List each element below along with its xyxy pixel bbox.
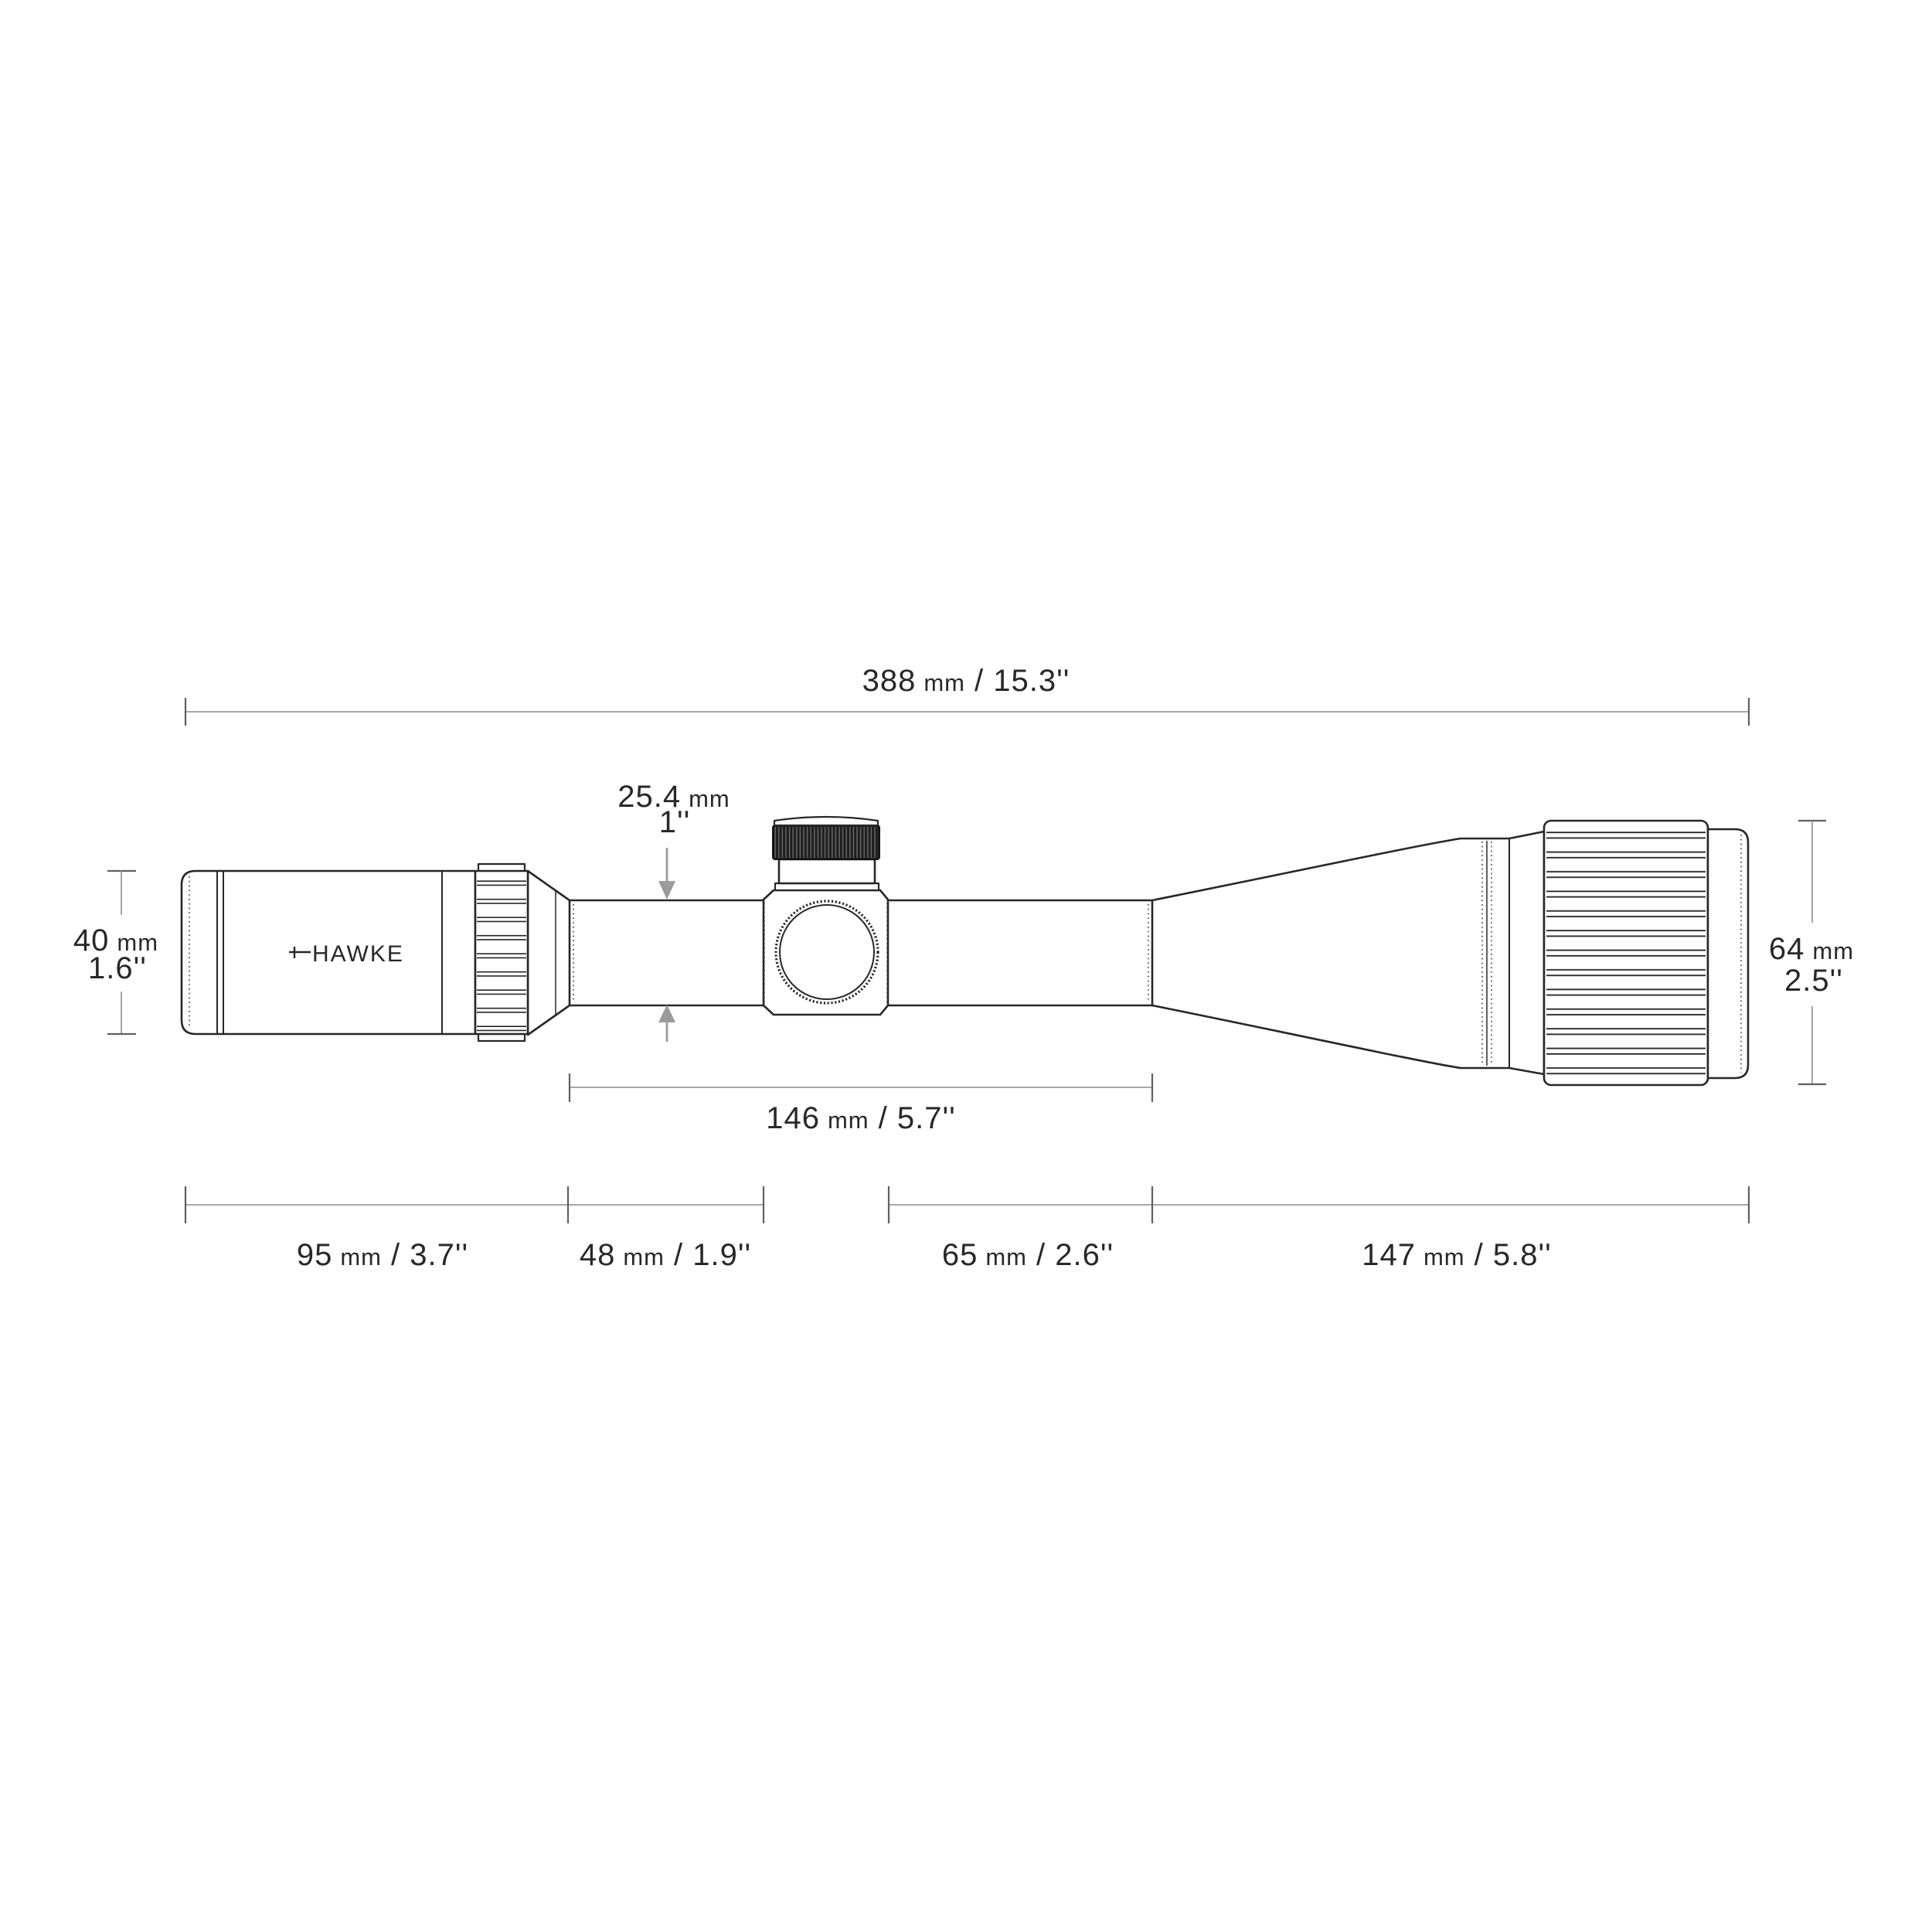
dim-tube-arrow-down-head [658, 881, 675, 900]
dim-tube-arrow-up-head [658, 1005, 675, 1022]
dim-seg-ocular-label: 95mm/ 3.7'' [297, 1238, 468, 1272]
riflescope-dimension-diagram: HAWKE [0, 0, 1932, 1932]
dim-objective-label-mm: 64mm [1769, 932, 1854, 966]
eyepiece-taper [528, 871, 570, 1035]
dim-eyepiece-diameter: 40mm 1.6'' [73, 871, 158, 1034]
windage-turret-face [780, 905, 874, 999]
elevation-turret-base [779, 859, 875, 883]
dim-seg-tube-label: 48mm/ 1.9'' [580, 1238, 751, 1272]
power-ring-knurling [477, 878, 526, 1032]
scope-drawing: HAWKE [182, 817, 1748, 1085]
dim-bottom-segments: 95mm/ 3.7'' 48mm/ 1.9'' 65mm/ 2.6'' 147m… [185, 1186, 1749, 1272]
diagram-canvas: HAWKE [0, 0, 1932, 1932]
logo-text: HAWKE [312, 941, 404, 967]
objective-end-cap [1708, 829, 1748, 1078]
dim-seg-obj-label: 147mm/ 5.8'' [1362, 1238, 1552, 1272]
dim-overall-length: 388mm/ 15.3'' [185, 664, 1749, 726]
dim-seg-mid-label: 65mm/ 2.6'' [942, 1238, 1114, 1272]
objective-bell [1152, 832, 1544, 1074]
dim-overall-label: 388mm/ 15.3'' [862, 664, 1070, 698]
dim-tube-diameter: 25.4mm 1'' [617, 780, 730, 1042]
dim-objective-diameter: 64mm 2.5'' [1769, 821, 1854, 1084]
dim-mount-length: 146mm/ 5.7'' [570, 1073, 1152, 1135]
elevation-turret-knurling [774, 827, 878, 858]
dim-objective-label-inch: 2.5'' [1784, 964, 1843, 998]
elevation-turret-cap [774, 817, 878, 825]
dim-tube-label-inch: 1'' [659, 805, 691, 839]
ao-ring-knurling [1546, 830, 1706, 1076]
dim-mount-label: 146mm/ 5.7'' [766, 1101, 956, 1135]
elevation-turret-flange [775, 883, 879, 890]
dim-eyepiece-label-inch: 1.6'' [88, 951, 147, 985]
